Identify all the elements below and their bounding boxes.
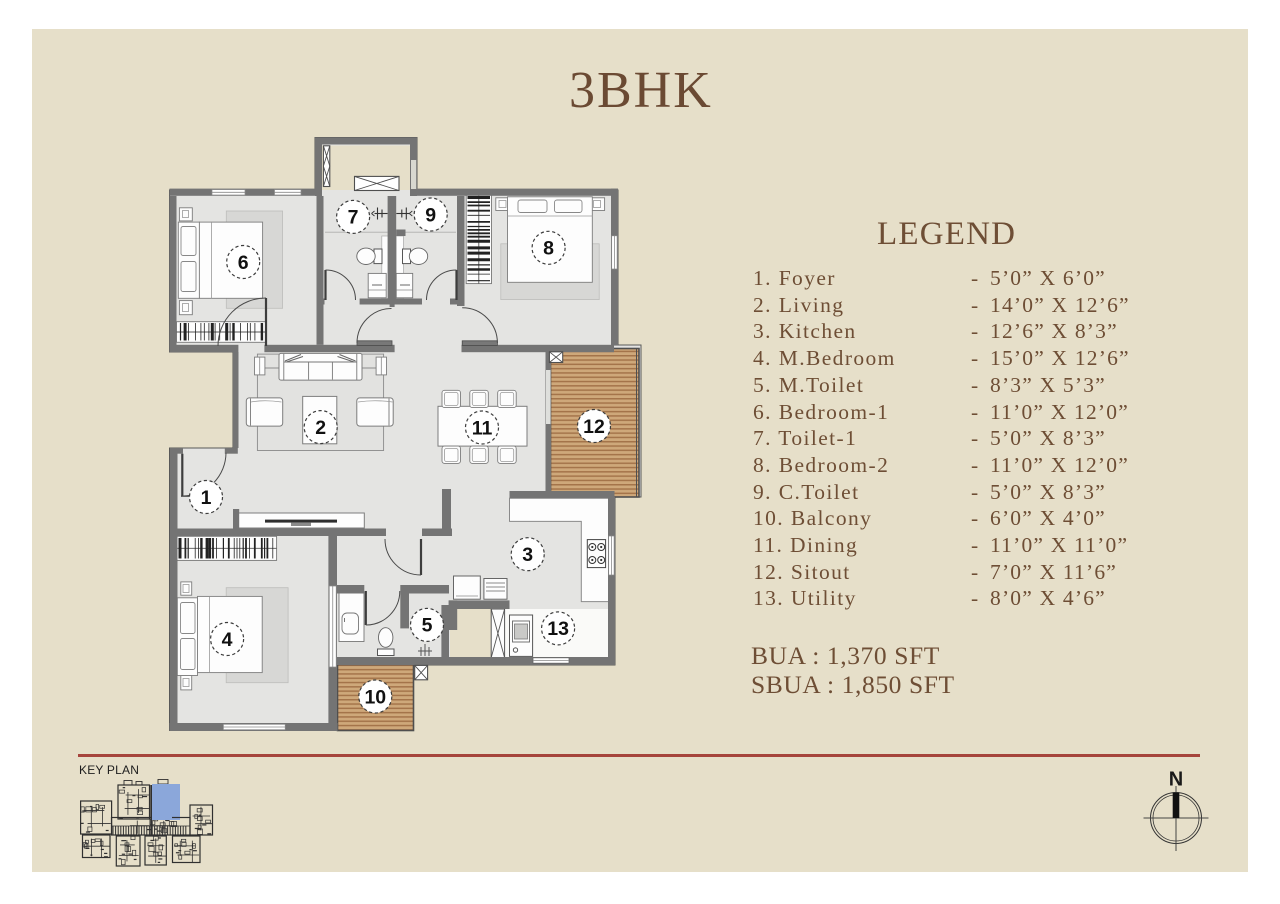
svg-text:5: 5 xyxy=(422,615,433,637)
svg-text:8: 8 xyxy=(543,238,554,260)
svg-text:4: 4 xyxy=(222,629,233,651)
svg-text:10: 10 xyxy=(364,686,386,708)
svg-text:1: 1 xyxy=(201,487,212,509)
svg-text:13: 13 xyxy=(547,618,569,640)
svg-text:N: N xyxy=(1169,769,1183,791)
svg-text:2: 2 xyxy=(315,417,326,439)
svg-text:7: 7 xyxy=(348,207,359,229)
svg-text:3: 3 xyxy=(522,544,533,566)
svg-text:9: 9 xyxy=(425,204,436,226)
svg-text:12: 12 xyxy=(583,416,605,438)
svg-text:6: 6 xyxy=(238,252,249,274)
svg-text:11: 11 xyxy=(472,417,493,439)
